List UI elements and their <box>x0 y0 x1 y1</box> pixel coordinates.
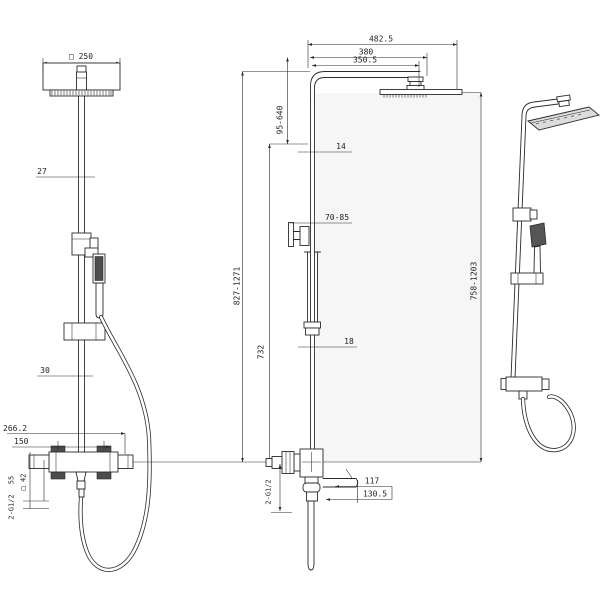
dim-pipe-width-label: 27 <box>37 167 47 176</box>
dim-bracket-range-label: 70-85 <box>325 213 349 222</box>
dim-depth-label: 55 <box>8 476 16 484</box>
dim-reach-spray-label: 350.5 <box>353 56 377 65</box>
dim-head-adjust-label: 95-640 <box>276 105 285 134</box>
dim-body-square-label: □ 42 <box>20 474 28 491</box>
front-riser-pipe <box>79 96 85 452</box>
front-mixer <box>29 446 133 497</box>
dim-height-total-label: 827-1271 <box>233 267 242 306</box>
persp-slider-bracket <box>511 273 543 284</box>
side-view: 482.5 380 350.5 827-1271 732 95-640 14 7… <box>233 35 482 571</box>
front-hand-shower <box>93 254 105 318</box>
dim-handle-len-label: 117 <box>365 477 380 486</box>
dim-tube-fixed-label: 732 <box>257 345 266 360</box>
front-view: □ 250 27 <box>3 52 298 570</box>
dim-head-width-label: □ 250 <box>69 52 93 61</box>
persp-mixer <box>501 377 549 399</box>
front-hose <box>81 317 150 570</box>
drawing-sheet: □ 250 27 <box>0 0 600 600</box>
dim-height-adjust-label: 758-1203 <box>470 262 479 301</box>
dim-pipe-dia-label: 14 <box>336 142 346 151</box>
dim-reach-total-label: 482.5 <box>369 35 393 44</box>
dim-tube-dia-label: 18 <box>344 337 354 346</box>
perspective-view <box>501 95 599 450</box>
dim-overall-width-label: 266.2 <box>3 424 27 433</box>
dim-slider-label: 30 <box>40 366 50 375</box>
dim-handle-reach-label: 130.5 <box>363 490 387 499</box>
dim-outlets-label: 2-G1/2 <box>265 479 273 504</box>
technical-drawing: □ 250 27 <box>0 0 600 600</box>
front-shower-head <box>43 63 120 96</box>
dim-inlet-distance-label: 150 <box>14 437 29 446</box>
side-wall-bracket <box>289 223 310 247</box>
persp-hose <box>523 396 574 450</box>
persp-diverter <box>513 208 537 221</box>
front-slider-bracket <box>64 323 105 340</box>
persp-hand-shower <box>530 223 546 277</box>
persp-shower-head <box>528 95 599 130</box>
dim-front-inlets-label: 2-G1/2 <box>8 494 16 519</box>
front-diverter <box>72 233 98 257</box>
